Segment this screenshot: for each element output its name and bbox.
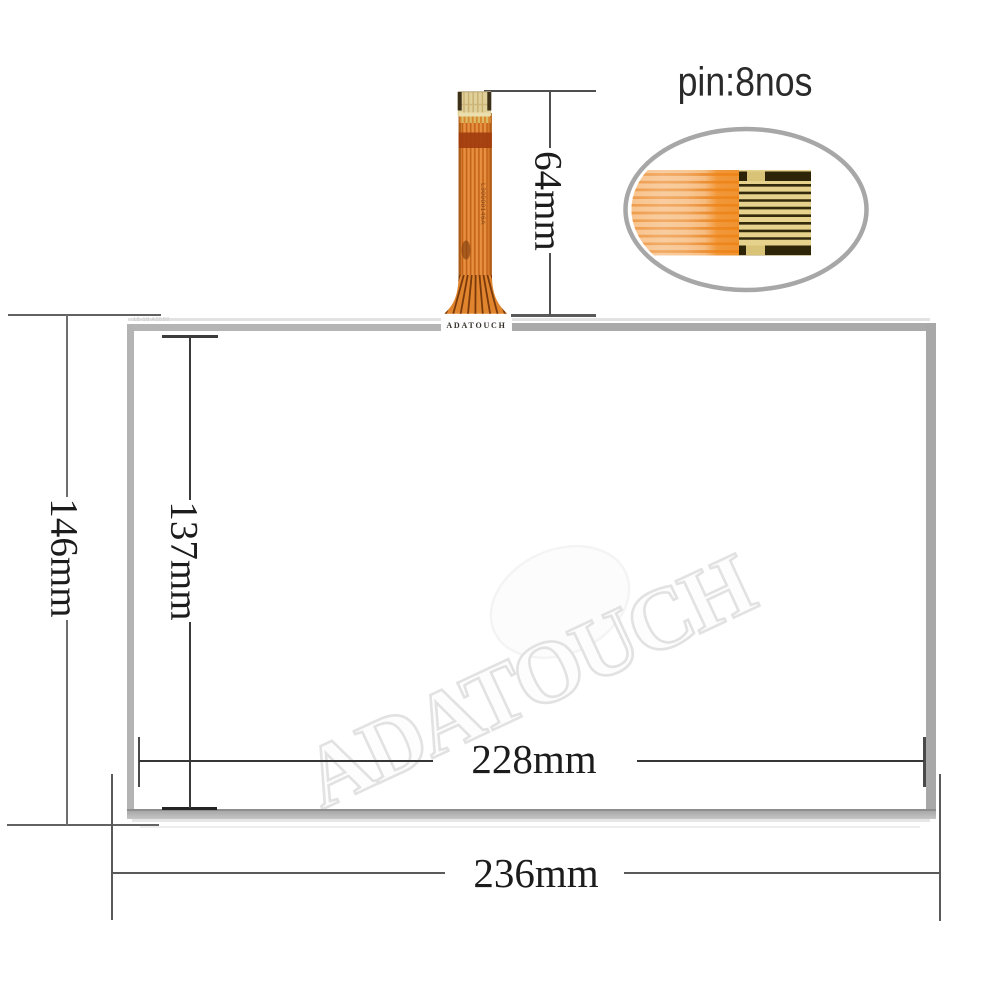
svg-text:L30900146A: L30900146A xyxy=(479,183,486,225)
